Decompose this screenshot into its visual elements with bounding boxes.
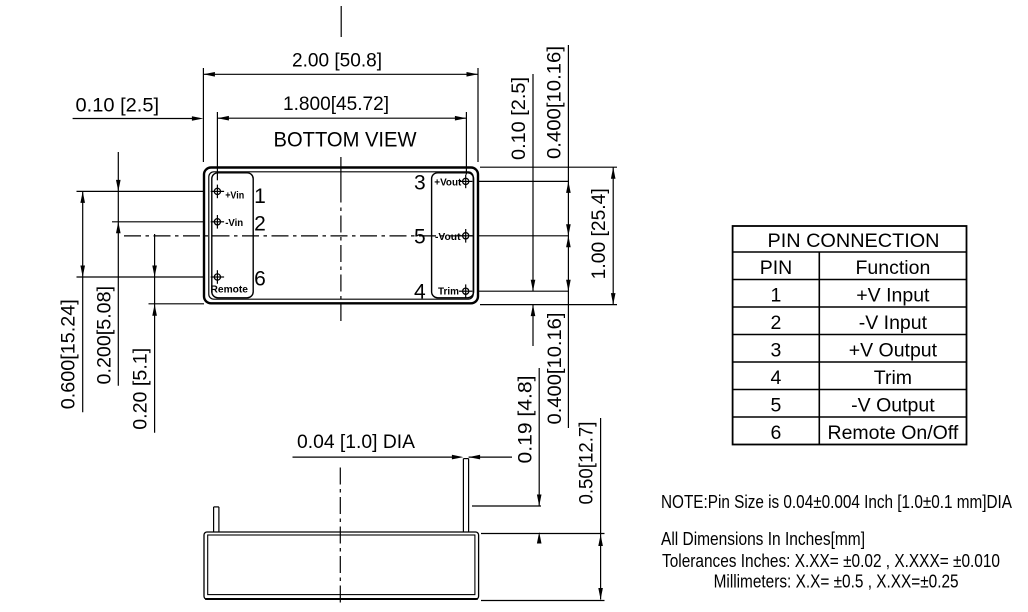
svg-text:6: 6 xyxy=(771,422,782,444)
svg-text:Trim: Trim xyxy=(438,287,459,298)
svg-text:All Dimensions In Inches[mm]: All Dimensions In Inches[mm] xyxy=(661,528,865,549)
svg-text:-Vout: -Vout xyxy=(435,232,461,243)
svg-text:-V Input: -V Input xyxy=(859,312,928,334)
svg-text:2: 2 xyxy=(771,312,782,334)
svg-text:4: 4 xyxy=(771,367,782,389)
svg-text:Function: Function xyxy=(856,257,931,279)
svg-text:5: 5 xyxy=(771,395,782,417)
svg-text:0.200[5.08]: 0.200[5.08] xyxy=(94,286,115,385)
svg-text:3: 3 xyxy=(771,340,782,362)
svg-text:Trim: Trim xyxy=(874,367,912,389)
svg-text:Remote On/Off: Remote On/Off xyxy=(828,422,959,444)
svg-text:0.19 [4.8]: 0.19 [4.8] xyxy=(515,376,536,464)
svg-text:BOTTOM VIEW: BOTTOM VIEW xyxy=(274,128,417,151)
svg-text:0.50[12.7]: 0.50[12.7] xyxy=(577,422,598,505)
svg-text:0.10 [2.5]: 0.10 [2.5] xyxy=(76,95,160,116)
svg-text:0.400[10.16]: 0.400[10.16] xyxy=(544,46,565,159)
svg-text:0.600[15.24]: 0.600[15.24] xyxy=(59,299,80,409)
svg-text:0.20 [5.1]: 0.20 [5.1] xyxy=(131,348,152,430)
svg-text:Millimeters: X.X= ±0.5 , X.XX=: Millimeters: X.X= ±0.5 , X.XX=±0.25 xyxy=(714,571,959,592)
svg-text:Tolerances Inches: X.XX= ±0.02: Tolerances Inches: X.XX= ±0.02 , X.XXX= … xyxy=(662,550,1000,571)
svg-text:+V Input: +V Input xyxy=(856,285,930,307)
svg-text:PIN CONNECTION: PIN CONNECTION xyxy=(768,230,940,252)
svg-text:1.800[45.72]: 1.800[45.72] xyxy=(283,94,389,115)
svg-text:PIN: PIN xyxy=(760,257,793,279)
svg-text:0.10 [2.5]: 0.10 [2.5] xyxy=(509,77,530,160)
svg-text:0.04 [1.0] DIA: 0.04 [1.0] DIA xyxy=(297,432,415,453)
svg-text:1: 1 xyxy=(254,185,266,208)
svg-text:+Vout: +Vout xyxy=(434,178,462,189)
svg-text:-Vin: -Vin xyxy=(225,218,243,229)
svg-text:1.00 [25.4]: 1.00 [25.4] xyxy=(589,188,610,279)
svg-text:0.400[10.16]: 0.400[10.16] xyxy=(545,313,566,425)
svg-text:+Vin: +Vin xyxy=(225,191,244,202)
svg-text:2.00 [50.8]: 2.00 [50.8] xyxy=(292,51,382,72)
svg-text:1: 1 xyxy=(771,285,782,307)
svg-text:+V Output: +V Output xyxy=(849,340,938,362)
svg-text:3: 3 xyxy=(414,171,426,194)
svg-text:2: 2 xyxy=(254,212,266,235)
svg-text:NOTE:Pin Size is 0.04±0.004 In: NOTE:Pin Size is 0.04±0.004 Inch [1.0±0.… xyxy=(661,491,1013,512)
svg-text:4: 4 xyxy=(414,280,426,303)
svg-text:Remote: Remote xyxy=(211,285,249,296)
svg-text:-V Output: -V Output xyxy=(851,395,935,417)
svg-text:5: 5 xyxy=(414,225,426,248)
svg-text:6: 6 xyxy=(254,267,266,290)
